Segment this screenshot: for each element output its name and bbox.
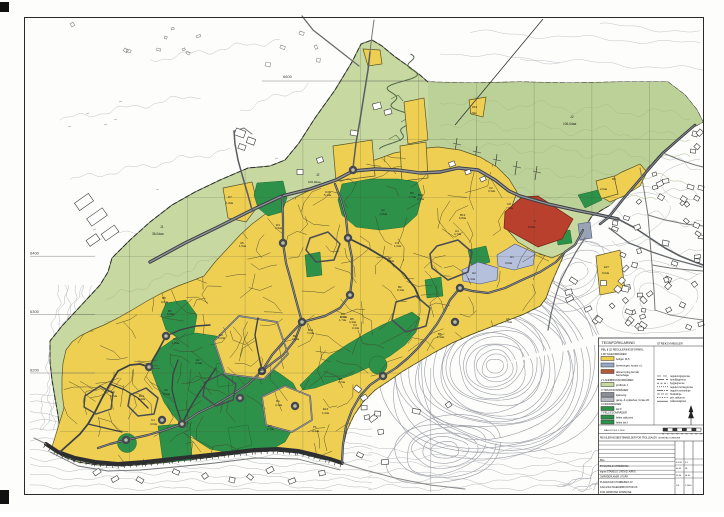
svg-text:4,4da: 4,4da	[275, 403, 282, 407]
svg-text:H2: H2	[472, 271, 476, 275]
svg-text:04.02: 04.02	[676, 468, 682, 470]
svg-text:1,0da: 1,0da	[322, 411, 329, 415]
svg-text:PLANEN ER UTARBEIDET AV: PLANEN ER UTARBEIDET AV	[600, 481, 633, 484]
svg-text:jordbruk J: jordbruk J	[615, 383, 628, 387]
svg-text:4,9da: 4,9da	[275, 226, 282, 230]
svg-text:D4: D4	[612, 177, 616, 181]
svg-text:3,4da: 3,4da	[312, 429, 319, 433]
svg-text:regulert senterlinje: regulert senterlinje	[670, 389, 691, 392]
svg-text:5,5da: 5,5da	[167, 312, 174, 316]
svg-text:5,8da: 5,8da	[528, 225, 535, 229]
svg-text:FOR GRIMSTAD KOMMUNE: FOR GRIMSTAD KOMMUNE	[600, 491, 632, 494]
svg-text:9,1da: 9,1da	[163, 392, 170, 396]
svg-text:tegnet STAVELIG 1 REVID. AVRIG: tegnet STAVELIG 1 REVID. AVRIG	[600, 471, 636, 474]
svg-text:3,0da: 3,0da	[150, 422, 157, 426]
svg-text:byggegrense: byggegrense	[670, 382, 685, 385]
svg-text:felles lek f: felles lek f	[616, 420, 628, 424]
svg-text:frisiktslinje: frisiktslinje	[670, 393, 682, 396]
svg-text:MÅLESTOKK 1:2000: MÅLESTOKK 1:2000	[604, 429, 625, 432]
svg-text:BYGGHOLD UTREDNING: BYGGHOLD UTREDNING	[600, 465, 629, 468]
svg-text:priv. adkomst: priv. adkomst	[670, 397, 685, 400]
svg-text:F: F	[534, 219, 536, 223]
svg-text:reguleringsgrense: reguleringsgrense	[670, 375, 691, 378]
svg-text:gang- & sykkelvei, fortau 20: gang- & sykkelvei, fortau 20	[616, 398, 650, 402]
svg-text:7,5da: 7,5da	[505, 320, 512, 324]
svg-text:5,7da: 5,7da	[387, 259, 394, 263]
svg-text:lek F: lek F	[616, 407, 622, 411]
svg-text:4,7da: 4,7da	[417, 197, 424, 201]
svg-text:1,6da: 1,6da	[394, 244, 401, 248]
svg-text:H1: H1	[510, 255, 514, 259]
svg-text:6200: 6200	[30, 368, 40, 373]
svg-text:STREKSYMBOLER: STREKSYMBOLER	[657, 342, 683, 346]
svg-text:felles adkomst: felles adkomst	[616, 415, 633, 419]
svg-text:3,4da: 3,4da	[352, 326, 359, 330]
svg-text:TEGNFORKLARING: TEGNFORKLARING	[602, 341, 636, 345]
svg-text:106,0daa: 106,0daa	[308, 180, 321, 184]
svg-text:J2: J2	[316, 173, 320, 177]
svg-text:REGULERINGSBESTEMMELSER FOR TR: REGULERINGSBESTEMMELSER FOR TROLLDALEN	[600, 437, 657, 440]
svg-text:50: 50	[662, 434, 664, 436]
svg-text:måle/avkjørsel: måle/avkjørsel	[670, 400, 687, 403]
svg-text:8,3da: 8,3da	[340, 315, 347, 319]
svg-text:2,0da: 2,0da	[600, 187, 607, 191]
svg-text:50: 50	[681, 434, 683, 436]
svg-text:D7: D7	[228, 195, 232, 199]
svg-text:regulert tomtegrense: regulert tomtegrense	[670, 386, 694, 389]
svg-text:36,0daa: 36,0daa	[152, 232, 164, 236]
svg-text:5,0da: 5,0da	[218, 336, 225, 340]
svg-text:kjøreveg: kjøreveg	[616, 393, 627, 397]
svg-text:1,3da: 1,3da	[258, 371, 265, 375]
svg-text:3,7da: 3,7da	[338, 380, 345, 384]
svg-text:7,0da: 7,0da	[307, 331, 314, 335]
svg-text:106,0daa: 106,0daa	[563, 122, 577, 126]
svg-text:5,1da: 5,1da	[324, 193, 331, 197]
svg-text:3,4da: 3,4da	[397, 288, 404, 292]
svg-text:6300: 6300	[30, 309, 40, 314]
svg-text:forretninger, kontor o.l.: forretninger, kontor o.l.	[616, 363, 643, 367]
svg-text:3,3da: 3,3da	[488, 189, 495, 193]
svg-text:OS: OS	[676, 485, 680, 487]
svg-text:formålsgrense: formålsgrense	[670, 379, 686, 382]
svg-text:1,5da: 1,5da	[239, 244, 246, 248]
svg-text:1,8da: 1,8da	[226, 201, 233, 205]
svg-text:KALLVIKA INGENIØRKONTOR AS: KALLVIKA INGENIØRKONTOR AS	[600, 486, 638, 489]
svg-text:50: 50	[695, 434, 697, 436]
svg-text:4,7da: 4,7da	[454, 232, 461, 236]
svg-text:E27: E27	[604, 265, 609, 269]
svg-text:GRIMSTAD KOMMUNE: GRIMSTAD KOMMUNE	[658, 437, 681, 440]
svg-text:3,3da: 3,3da	[195, 361, 202, 365]
svg-text:1,5da: 1,5da	[172, 341, 179, 345]
svg-text:50: 50	[700, 434, 702, 436]
svg-text:D10: D10	[472, 105, 478, 109]
svg-text:2,7da: 2,7da	[267, 427, 274, 431]
svg-text:9,6da: 9,6da	[161, 300, 168, 304]
svg-text:BILL: BILL	[600, 459, 606, 462]
svg-text:1,5da: 1,5da	[470, 111, 477, 115]
svg-text:7,9da: 7,9da	[506, 206, 513, 210]
svg-text:6400: 6400	[30, 251, 40, 256]
svg-text:50: 50	[691, 434, 693, 436]
svg-text:7,7da: 7,7da	[409, 195, 416, 199]
svg-text:6600: 6600	[283, 74, 293, 79]
svg-text:barnehage: barnehage	[616, 373, 629, 377]
svg-text:6,8da: 6,8da	[459, 216, 466, 220]
svg-text:boliger M-5: boliger M-5	[616, 357, 630, 361]
svg-text:50: 50	[676, 434, 678, 436]
svg-text:1,4da: 1,4da	[437, 335, 444, 339]
svg-text:50: 50	[686, 434, 688, 436]
svg-text:9.9.98: 9.9.98	[676, 462, 683, 464]
svg-text:J1: J1	[160, 225, 164, 229]
svg-text:50: 50	[667, 434, 669, 436]
svg-text:5,7da: 5,7da	[110, 394, 117, 398]
svg-text:24.04: 24.04	[676, 475, 682, 477]
svg-text:7,2da: 7,2da	[292, 337, 299, 341]
svg-text:OMRÅDEPLANER UTGÅR: OMRÅDEPLANER UTGÅR	[600, 476, 628, 479]
svg-text:J2: J2	[570, 115, 574, 119]
svg-text:2,8da: 2,8da	[380, 212, 387, 216]
svg-text:8,4da: 8,4da	[138, 397, 145, 401]
svg-text:1,0da: 1,0da	[468, 277, 475, 281]
svg-text:9,0da: 9,0da	[602, 271, 609, 275]
svg-text:1:2000: 1:2000	[685, 485, 692, 487]
svg-text:3,0da: 3,0da	[505, 261, 512, 265]
svg-text:50: 50	[672, 434, 674, 436]
svg-text:04.05: 04.05	[685, 475, 691, 477]
